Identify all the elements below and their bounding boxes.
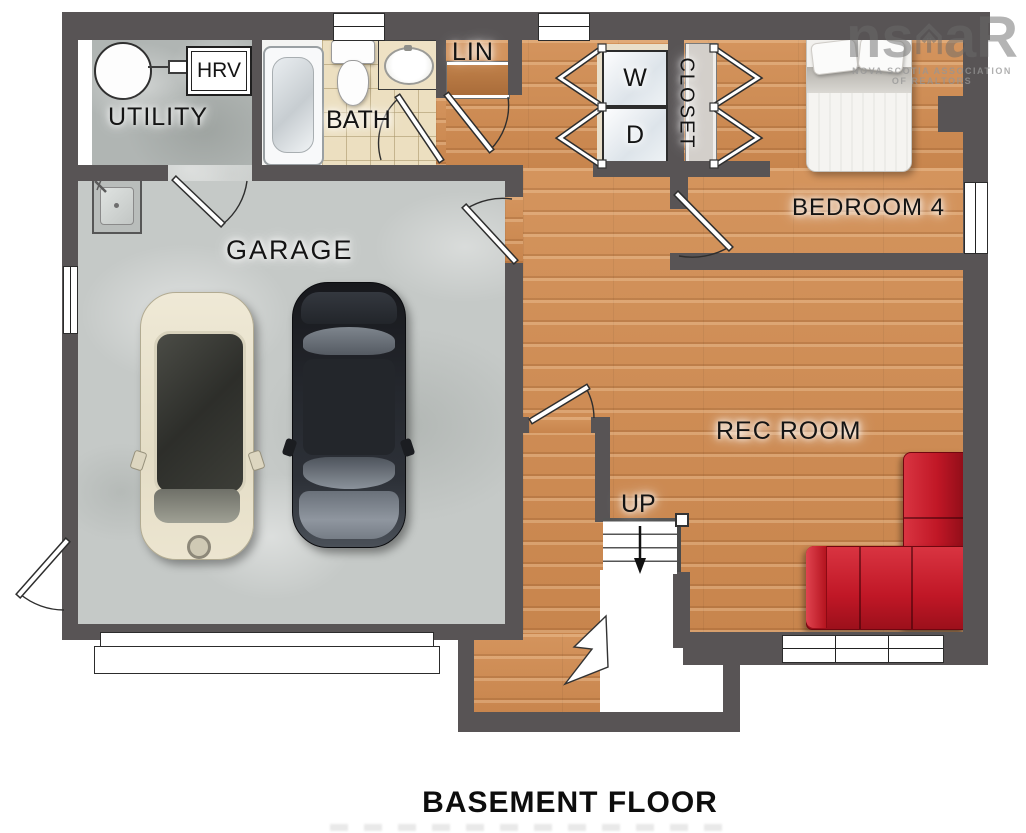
nsar-watermark-line2: OF REALTORS [846, 76, 1018, 86]
wall-entry-east [723, 648, 740, 732]
bathtub-basin [272, 57, 314, 153]
washer-label: W [623, 64, 647, 93]
garage-sink [92, 178, 142, 234]
floor-plan: HRV W D [0, 0, 1026, 833]
linen-shelf [447, 62, 509, 98]
hot-water-tank [94, 42, 152, 100]
car-dark-hood [299, 491, 399, 539]
window-utility-top [333, 13, 385, 41]
cropped-footer-text [330, 824, 730, 831]
stairs-treads [603, 518, 677, 574]
garage-hall-door-opening [505, 197, 523, 263]
wall-bath-hall [436, 40, 446, 98]
dryer-label: D [626, 121, 644, 150]
room-label-bath: BATH [326, 106, 391, 135]
window-hall-top [538, 13, 590, 41]
room-label-bedroom4: BEDROOM 4 [792, 194, 945, 222]
car-cream [140, 292, 254, 560]
room-label-lin: LIN [452, 38, 494, 67]
stairs-newel-post [675, 513, 689, 527]
room-label-utility: UTILITY [108, 103, 208, 132]
nsar-watermark-prefix: ns [846, 12, 914, 64]
wall-rec-corridor-divider [595, 417, 610, 522]
wall-lin-right [508, 40, 522, 95]
window-bedroom-right [964, 182, 988, 254]
wall-utility-bath-south [62, 165, 523, 181]
wall-left [62, 40, 78, 640]
car-dark-rear-window [303, 327, 395, 355]
dryer: D [602, 107, 668, 164]
bath-door-opening [436, 98, 446, 165]
stairs-up-label: UP [621, 490, 656, 519]
sofa-armrest [806, 546, 827, 628]
hrv-label: HRV [197, 59, 241, 83]
sofa-seats [806, 546, 968, 630]
bath-vanity [378, 40, 438, 90]
car-dark-roof [303, 359, 395, 455]
nsar-house-icon [915, 12, 943, 64]
nsar-watermark: ns aR NOVA SCOTIA ASSOCIATION OF REALTOR… [846, 12, 1018, 108]
bathtub [263, 46, 324, 166]
bath-sink-faucet [404, 45, 412, 51]
car-dark-windshield [303, 457, 395, 489]
car-cream-windshield [154, 489, 240, 523]
car-cream-hood-emblem [187, 535, 211, 559]
bath-sink-basin [384, 47, 434, 85]
room-label-closet-text: CLOSET [675, 57, 698, 149]
garage-sink-drain [114, 203, 119, 208]
toilet-bowl [337, 60, 369, 106]
room-label-garage: GARAGE [226, 235, 354, 266]
wall-bedroom-west-stub [670, 177, 688, 209]
plan-title: BASEMENT FLOOR [370, 786, 770, 820]
wall-right [963, 40, 988, 665]
room-label-closet: CLOSET [662, 42, 710, 164]
nsar-watermark-suffix: aR [944, 12, 1018, 64]
utility-door-opening [168, 165, 252, 181]
wall-utility-tub-divider [252, 40, 262, 165]
wall-entry-west [458, 640, 474, 716]
door-garage-exterior [20, 542, 66, 610]
entry-corridor-wood-floor [472, 634, 600, 714]
wall-entry-south [458, 712, 740, 732]
room-label-rec-room: REC ROOM [716, 417, 862, 446]
stairwell-void-upper [600, 570, 677, 648]
car-dark [292, 282, 406, 548]
hrv-unit: HRV [186, 46, 252, 96]
nsar-watermark-line1: NOVA SCOTIA ASSOCIATION [846, 66, 1018, 76]
toilet [331, 40, 373, 106]
window-garage-left [63, 266, 78, 334]
hall-corridor-door-opening [529, 417, 591, 433]
window-rec-room-bottom [782, 635, 944, 663]
car-cream-glass-roof [154, 331, 246, 495]
garage-door-panel-lower [94, 646, 440, 674]
car-dark-rear-deck [301, 292, 397, 324]
washer: W [602, 50, 668, 107]
wall-bedroom-south [670, 253, 963, 270]
